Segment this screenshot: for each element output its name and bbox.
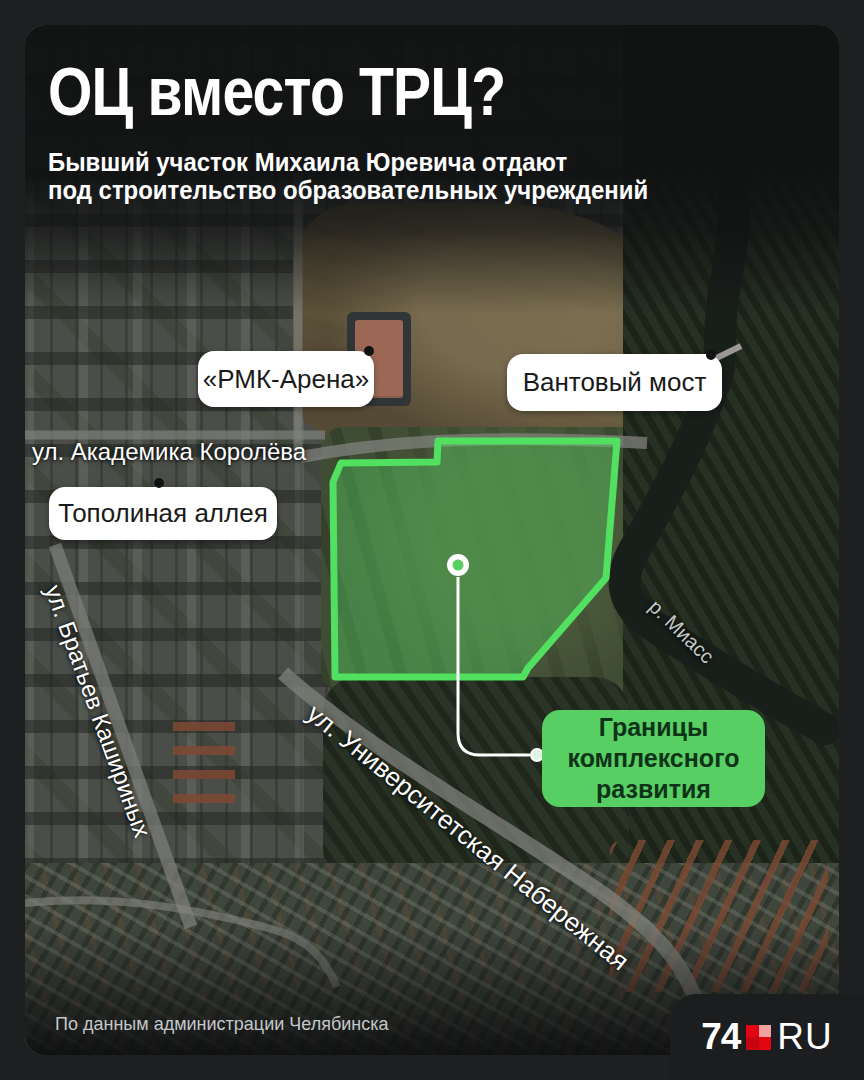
infographic-poster: ОЦ вместо ТРЦ? Бывший участок Михаила Юр… bbox=[0, 0, 864, 1080]
development-boundary-label: Границы комплексного развития bbox=[542, 710, 765, 807]
boundary-label-line-1: Границы bbox=[599, 712, 709, 743]
map-pin-dot-icon bbox=[706, 350, 716, 360]
callout-rmk-arena: «РМК-Арена» bbox=[198, 351, 374, 407]
logo-number: 74 bbox=[701, 1016, 740, 1058]
site-marker-icon bbox=[447, 554, 469, 576]
map-pin-dot-icon bbox=[364, 346, 374, 356]
map-pin-dot-icon bbox=[154, 478, 164, 488]
logo-red-square-icon bbox=[746, 1025, 771, 1050]
callout-vantovy-most: Вантовый мост bbox=[507, 354, 722, 411]
page-title: ОЦ вместо ТРЦ? bbox=[48, 52, 505, 130]
boundary-label-line-2: комплексного bbox=[568, 743, 740, 774]
boundary-label-line-3: развития bbox=[596, 774, 711, 805]
callout-topolinaya-alleya: Тополиная аллея bbox=[49, 487, 277, 540]
development-area-polygon bbox=[333, 441, 617, 677]
logo-domain: RU bbox=[777, 1016, 832, 1058]
data-source-attribution: По данным администрации Челябинска bbox=[55, 1014, 389, 1035]
street-label-koroleva: ул. Академика Королёва bbox=[32, 438, 306, 466]
subtitle-line-1: Бывший участок Михаила Юревича отдают bbox=[48, 148, 648, 176]
page-subtitle: Бывший участок Михаила Юревича отдают по… bbox=[48, 148, 648, 204]
subtitle-line-2: под строительство образовательных учрежд… bbox=[48, 176, 648, 204]
brand-logo-74ru: 74 RU bbox=[670, 994, 864, 1080]
